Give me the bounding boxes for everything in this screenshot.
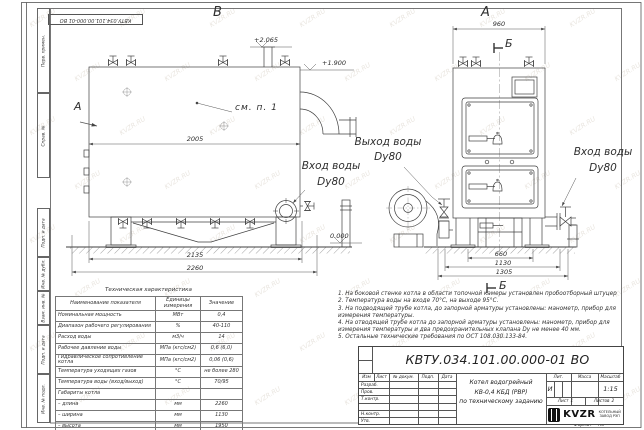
note-item: 3. На подводящей трубе котла, до запорно… xyxy=(338,306,620,320)
description-line1: Котел водогрейный xyxy=(456,378,546,388)
see-note-callout: см. п. 1 xyxy=(235,103,278,113)
table-cell-name: Габариты котла xyxy=(56,388,156,399)
table-row: Диапазон рабочего регулирования%40-110 xyxy=(56,322,243,333)
table-cell-name: – высота xyxy=(56,421,156,430)
col-header-name: Наименование показателя xyxy=(56,297,156,311)
logo-subtitle: КОТЕЛЬНЫЙ ЗАВОД РЭП xyxy=(599,411,621,419)
table-cell-units: МВт xyxy=(156,311,201,322)
sheet-label: Лист xyxy=(558,397,569,405)
table-cell-value: 14 xyxy=(201,333,243,344)
margin-stamp-box: Подп. и дата xyxy=(37,325,50,374)
table-cell-value: 2260 xyxy=(201,399,243,410)
table-cell-value: 1950 xyxy=(201,421,243,430)
dim-2135: 2135 xyxy=(177,251,213,259)
table-cell-value: 0,6 (6,0) xyxy=(201,344,243,355)
table-cell-name: Расход воды xyxy=(56,333,156,344)
col-data: Дата xyxy=(438,373,456,381)
margin-stamp-box: Справ. № xyxy=(37,93,50,178)
table-cell-value: 40-110 xyxy=(201,322,243,333)
row-razrab: Разраб. xyxy=(361,382,388,389)
dim-1305: 1305 xyxy=(486,268,522,276)
char-table: Наименование показателя Единицы измерени… xyxy=(55,296,243,430)
sheets-label: Листов xyxy=(594,397,610,405)
table-cell-value: 0,4 xyxy=(201,311,243,322)
row-tkontr: Т.контр. xyxy=(361,396,388,403)
row-empty xyxy=(361,404,388,411)
water-inlet-dn-left: Dy80 xyxy=(296,176,366,188)
sheets-value: 2 xyxy=(611,397,614,405)
margin-stamp-label: Инв. № дубл. xyxy=(41,259,46,288)
elevation-1900: +1.900 xyxy=(322,59,346,67)
note-item: 5. Остальные технические требования по О… xyxy=(338,334,620,341)
water-inlet-dn-right: Dy80 xyxy=(566,162,640,174)
logo-sub-line2: ЗАВОД РЭП xyxy=(599,415,621,419)
table-cell-name: – ширина xyxy=(56,410,156,421)
lit-value: И xyxy=(546,381,554,397)
table-cell-value: не более 280 xyxy=(201,366,243,377)
table-cell-name: Рабочее давление воды xyxy=(56,344,156,355)
table-cell-units: °С xyxy=(156,366,201,377)
col-podp: Подп. xyxy=(418,373,438,381)
view-label-b: В xyxy=(213,5,222,20)
view-label-a: А xyxy=(481,5,490,20)
water-inlet-label-right: Вход воды xyxy=(566,146,640,158)
table-cell-units: МПа (кгс/см2) xyxy=(156,355,201,367)
table-cell-name: – длина xyxy=(56,399,156,410)
margin-stamp-box: Взам. инв. № xyxy=(37,291,50,325)
scale-label: Масштаб xyxy=(598,373,623,381)
scale-value: 1:15 xyxy=(598,381,623,397)
table-cell-units: % xyxy=(156,322,201,333)
table-row: Температура уходящих газов°Сне более 280 xyxy=(56,366,243,377)
char-table-body: Номинальная мощностьМВт0,4Диапазон рабоч… xyxy=(56,311,243,430)
table-cell-units: °С xyxy=(156,377,201,388)
description-line3: по техническому заданию xyxy=(456,397,546,407)
dim-960: 960 xyxy=(481,20,517,28)
sheets-total: Листов 2 xyxy=(585,397,623,405)
view-arrow-label-a: А xyxy=(74,100,82,113)
dim-2260: 2260 xyxy=(177,264,213,272)
manufacturer-logo: KVZR КОТЕЛЬНЫЙ ЗАВОД РЭП xyxy=(546,405,623,424)
table-row: Габариты котла xyxy=(56,388,243,399)
top-designation-stamp: КВТУ.034.101.00.000-01 ВО xyxy=(48,14,143,25)
note-item: 4. На отводящей трубе котла до запорной … xyxy=(338,320,620,334)
margin-stamp-box: Перв. примен. xyxy=(37,8,50,93)
table-cell-units: МПа (кгс/см2) xyxy=(156,344,201,355)
row-prov: Пров. xyxy=(361,389,388,396)
table-cell-value: 70/95 xyxy=(201,377,243,388)
table-cell-units: мм xyxy=(156,399,201,410)
table-row: Гидравлическое сопротивление котлаМПа (к… xyxy=(56,355,243,367)
table-cell-name: Гидравлическое сопротивление котла xyxy=(56,355,156,367)
table-row: – ширинамм1130 xyxy=(56,410,243,421)
table-cell-units: мм xyxy=(156,410,201,421)
logo-text: KVZR xyxy=(563,409,595,420)
note-item: 2. Температура воды на входе 70°С, на вы… xyxy=(338,298,620,305)
row-utv: Утв. xyxy=(361,418,388,425)
table-row: Номинальная мощностьМВт0,4 xyxy=(56,311,243,322)
margin-stamp-label: Инв. № подл. xyxy=(41,384,46,414)
margin-stamp-label: Подп. и дата xyxy=(41,335,46,364)
table-cell-name: Температура воды (вход/выход) xyxy=(56,377,156,388)
table-cell-name: Температура уходящих газов xyxy=(56,366,156,377)
table-cell-name: Номинальная мощность xyxy=(56,311,156,322)
mass-label: Масса xyxy=(571,373,598,381)
table-cell-units xyxy=(156,388,201,399)
note-item: 1. На боковой стенке котла в области топ… xyxy=(338,291,620,298)
margin-stamp-label: Подп. и дата xyxy=(41,218,46,247)
dim-1130: 1130 xyxy=(485,259,521,267)
sheet-value: 1 xyxy=(570,397,573,405)
dimension-lines xyxy=(72,26,568,280)
boiler-side-view xyxy=(84,47,356,248)
table-row: Расход водым3/ч14 xyxy=(56,333,243,344)
notes-list: 1. На боковой стенке котла в области топ… xyxy=(338,291,620,341)
char-table-title: Техническая характеристика xyxy=(55,287,242,293)
table-row: – длинамм2260 xyxy=(56,399,243,410)
margin-stamp-box: Инв. № дубл. xyxy=(37,257,50,291)
table-cell-units: м3/ч xyxy=(156,333,201,344)
product-description: Котел водогрейный КВ-0,4 КБД (РВР) по те… xyxy=(456,373,546,424)
col-header-value: Значение xyxy=(201,297,243,311)
col-header-units: Единицы измерения xyxy=(156,297,201,311)
table-row: Температура воды (вход/выход)°С70/95 xyxy=(56,377,243,388)
title-designation: КВТУ.034.101.00.000-01 ВО xyxy=(372,347,623,373)
table-cell-value xyxy=(201,388,243,399)
margin-stamp-label: Перв. примен. xyxy=(41,34,46,66)
table-row: – высотамм1950 xyxy=(56,421,243,430)
table-cell-units: мм xyxy=(156,421,201,430)
margin-stamp-label: Взам. инв. № xyxy=(41,293,46,322)
section-label-b-top: Б xyxy=(505,37,513,50)
table-cell-name: Диапазон рабочего регулирования xyxy=(56,322,156,333)
dim-660: 660 xyxy=(483,250,519,258)
dim-2005: 2005 xyxy=(177,135,213,143)
description-line2: КВ-0,4 КБД (РВР) xyxy=(456,388,546,398)
logo-emblem-icon xyxy=(548,408,560,422)
col-izm: Изм xyxy=(359,373,374,381)
drawing-sheet: KVZR.RUKVZR.RUKVZR.RUKVZR.RUKVZR.RUKVZR.… xyxy=(0,0,644,430)
margin-stamp-label: Справ. № xyxy=(41,125,46,146)
margin-stamp-box: Инв. № подл. xyxy=(37,374,50,423)
col-dokum: № докум. xyxy=(389,373,418,381)
elevation-2065: +2.065 xyxy=(254,36,278,44)
table-row: Рабочее давление водыМПа (кгс/см2)0,6 (6… xyxy=(56,344,243,355)
col-list: Лист xyxy=(374,373,389,381)
lit-label: Лит. xyxy=(546,373,571,381)
row-nkontr: Н.контр. xyxy=(361,411,388,418)
table-cell-value: 0,06 (0,6) xyxy=(201,355,243,367)
water-outlet-label: Выход воды xyxy=(346,136,430,148)
title-block: КВТУ.034.101.00.000-01 ВО Изм Лист № док… xyxy=(358,346,624,425)
margin-stamp-box: Подп. и дата xyxy=(37,208,50,257)
table-cell-value: 1130 xyxy=(201,410,243,421)
water-inlet-label-left: Вход воды xyxy=(296,160,366,172)
elevation-0000: 0.000 xyxy=(330,232,349,240)
sheet-number: Лист 1 xyxy=(546,397,585,405)
